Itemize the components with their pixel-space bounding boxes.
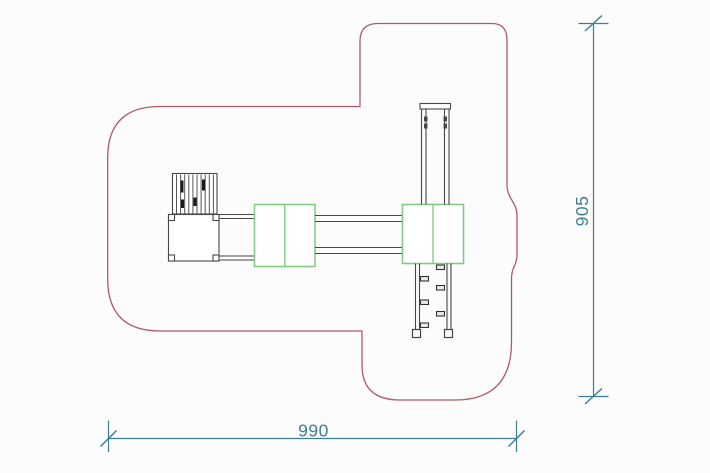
slide-rails-top	[420, 104, 451, 205]
dimension-horizontal: 990	[101, 421, 525, 453]
rail-clamp	[444, 124, 448, 129]
corner-post	[169, 255, 175, 261]
platform-deck-square	[169, 215, 220, 262]
plan-drawing-canvas: 905 990	[0, 0, 710, 473]
ladder-rung	[437, 312, 445, 317]
green-platform-mid	[255, 205, 316, 267]
rail-clamp	[424, 124, 428, 129]
plan-drawing: 905 990	[0, 0, 710, 473]
corner-post	[169, 215, 175, 221]
bridge-rails-left	[219, 215, 255, 261]
ladder-foot	[413, 330, 421, 338]
green-platform-right	[403, 205, 464, 264]
corner-post	[213, 215, 219, 221]
corner-post	[213, 255, 219, 261]
ladder-rung	[421, 300, 429, 305]
ladder-rung	[437, 265, 445, 270]
slide-end-bar	[420, 104, 451, 110]
ladder-rung	[437, 286, 445, 291]
ladder-rung	[421, 277, 429, 282]
ramp-outline	[173, 174, 218, 215]
dimension-vertical: 905	[572, 16, 609, 405]
deck-outline	[169, 215, 220, 262]
rail-clamp	[444, 117, 448, 122]
ladder-rung	[421, 323, 429, 328]
dimension-vertical-label: 905	[572, 196, 592, 227]
access-ladder-bottom	[413, 264, 453, 338]
dimension-horizontal-label: 990	[298, 421, 329, 441]
rail-clamp	[424, 117, 428, 122]
ladder-foot	[445, 330, 453, 338]
bridge-rails-right	[315, 216, 403, 254]
climbing-ramp-hatched	[173, 174, 218, 215]
